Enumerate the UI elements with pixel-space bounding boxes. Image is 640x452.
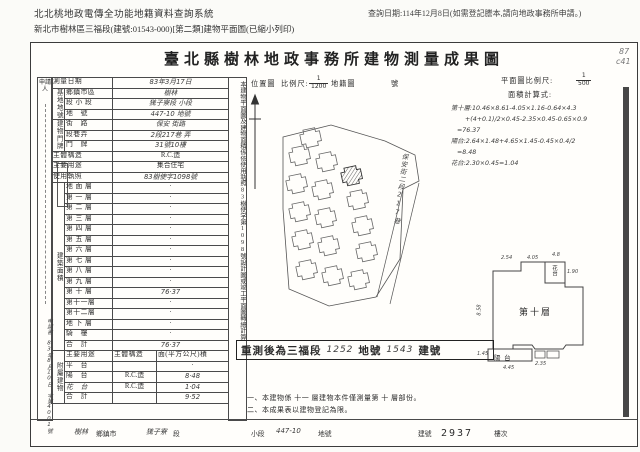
license-label: 使用執照: [52, 172, 113, 183]
calc-line: =8.48: [451, 147, 633, 158]
calc-line: 花台:2.30×0.45=1.04: [451, 158, 633, 169]
field-value: 獇子寮段 小段: [113, 99, 229, 110]
footer-building-number: 2937: [441, 428, 473, 439]
attach-struct-header: 主體構造: [113, 351, 157, 362]
floor-label: 第 二 層: [65, 204, 113, 215]
attach-label: 陽 台: [65, 372, 113, 383]
survey-date-label: 測量日期: [52, 78, 113, 89]
table-row: 第 一 層·: [52, 193, 229, 204]
dim-right-a: 1.90: [567, 269, 578, 275]
floor-plan-label: 第十層: [519, 305, 552, 318]
table-row: 門 牌 31號10樓: [52, 141, 229, 152]
attach-struct: R.C.造: [113, 382, 157, 393]
table-row: 合 計76·37: [52, 340, 229, 351]
table-row: 地 號 447-10 地號: [52, 109, 229, 120]
building-form-table: 測量日期 83年3月17日 基地地號 鄉鎮市區 樹林 段 小 段 獇子寮段 小段…: [51, 77, 229, 404]
pencil-mark-top: 87: [619, 47, 629, 56]
table-row: 使用執照 83樹使字1098號: [52, 172, 229, 183]
small-planter-a: [535, 351, 545, 358]
calc-line: +(4+0.1)/2×0.45-2.35×0.45-0.65×0.9: [451, 114, 633, 125]
remeasure-lot-number: 1252: [327, 345, 354, 355]
field-value: 31號10樓: [113, 141, 229, 152]
site-group-label: 基地地號: [52, 88, 65, 120]
attach-label: 平 台: [65, 361, 113, 372]
floor-total-value: 76·37: [113, 340, 229, 351]
table-row: 建物門牌 街 路 保安 街路: [52, 120, 229, 131]
floor-area: ·: [113, 319, 229, 330]
plan-scale-label: 平面圖比例尺:: [501, 76, 553, 86]
attach-label: 花 台: [65, 382, 113, 393]
footer-subsection-label: 小段: [251, 428, 265, 438]
table-row: 第 三 層·: [52, 214, 229, 225]
pencil-mark-bottom: c41: [616, 57, 631, 66]
footer-building-label: 建號: [418, 428, 432, 438]
scale-denominator: 500: [576, 80, 591, 88]
footer-section-label: 段: [173, 428, 180, 438]
scan-edge-shadow: [623, 87, 629, 417]
floor-label: 第 十 層: [65, 288, 113, 299]
applicant-blank-line: [45, 104, 46, 304]
table-row: 主體構造 R.C.造: [52, 151, 229, 162]
attach-struct: [113, 361, 157, 372]
floor-area: ·: [113, 309, 229, 320]
table-row: 騎 樓·: [52, 330, 229, 341]
field-value: 447-10 地號: [113, 109, 229, 120]
floor-label: 第 六 層: [65, 246, 113, 257]
remeasure-note-box: 重測後為三福段 1252 地號 1543 建號: [236, 340, 494, 360]
remeasure-building-suffix: 建號: [418, 343, 441, 358]
attachment-group-label: 附屬建物: [52, 351, 65, 404]
floor-area: ·: [113, 204, 229, 215]
field-label: 段巷弄: [65, 130, 113, 141]
structure-label: 主體構造: [52, 151, 113, 162]
table-row: 第 九 層·: [52, 277, 229, 288]
note-1: 一、本建物係 十一 層建物本件僅測量第 十 層部份。: [247, 393, 421, 403]
table-row: 第 八 層·: [52, 267, 229, 278]
query-date: 查詢日期:114年12月8日(如需登記謄本,請向地政事務所申請。): [368, 8, 581, 19]
door-group-label: 建物門牌: [52, 120, 65, 152]
calc-line: 第十層:10.46×8.61-4.05×1.16-0.64×4.3: [451, 103, 633, 114]
building-footprints: [285, 127, 378, 291]
floor-label: 第 一 層: [65, 193, 113, 204]
floor-area: ·: [113, 267, 229, 278]
table-row: 平 台 ·: [52, 361, 229, 372]
floor-label: 騎 樓: [65, 330, 113, 341]
area-calculation: 第十層:10.46×8.61-4.05×1.16-0.64×4.3 +(4+0.…: [451, 103, 633, 169]
floor-label: 第十二層: [65, 309, 113, 320]
table-row: 第 五 層·: [52, 235, 229, 246]
attach-area: 8·48: [157, 372, 229, 383]
calc-line: =76.37: [451, 125, 633, 136]
attach-use-header: 主要用途: [65, 351, 113, 362]
applicant-label: 申請人: [38, 80, 52, 93]
note-2: 二、本成果表以建物登記為限。: [247, 405, 352, 415]
footer-divider: [31, 419, 637, 420]
footer-town-value: 樹林: [74, 427, 88, 437]
remeasure-prefix: 重測後為三福段: [241, 343, 322, 358]
attach-area: 1·04: [157, 382, 229, 393]
floor-area: ·: [113, 225, 229, 236]
table-row: 合 計 9·52: [52, 393, 229, 404]
dim-top-c: 4.8: [552, 252, 560, 258]
use-label: 主要用途: [52, 162, 113, 173]
floor-label: 地 下 層: [65, 319, 113, 330]
field-value: 樹林: [113, 88, 229, 99]
floor-label: 第 九 層: [65, 277, 113, 288]
floor-area: ·: [113, 235, 229, 246]
table-row: 附屬建物 主要用途 主體構造 面(平方公尺)積: [52, 351, 229, 362]
floor-total-label: 合 計: [65, 340, 113, 351]
table-row: 第十二層·: [52, 309, 229, 320]
floor-label: 第 五 層: [65, 235, 113, 246]
location-map: [243, 89, 449, 315]
north-arrow-icon: [249, 95, 261, 189]
survey-date-value: 83年3月17日: [113, 78, 229, 89]
floor-area: ·: [113, 277, 229, 288]
floor-area: ·: [113, 256, 229, 267]
table-row: 第 七 層·: [52, 256, 229, 267]
table-row: 段 小 段 獇子寮段 小段: [52, 99, 229, 110]
table-row: 測量日期 83年3月17日: [52, 78, 229, 89]
calc-line: 陽台:2.64×1.48+4.65×1.45-0.45×0.4/2: [451, 136, 633, 147]
dim-top-a: 2.54: [501, 255, 512, 261]
field-label: 門 牌: [65, 141, 113, 152]
floor-area: ·: [113, 183, 229, 194]
floor-area: ·: [113, 193, 229, 204]
table-row: 建築面積 地 面 層 ·: [52, 183, 229, 194]
floor-label: 第 四 層: [65, 225, 113, 236]
table-row: 第 六 層·: [52, 246, 229, 257]
dim-bottom-a: 4.45: [503, 365, 514, 371]
field-label: 鄉鎮市區: [65, 88, 113, 99]
dim-left: 8.58: [477, 304, 483, 315]
table-row: 第 十 層76·37: [52, 288, 229, 299]
location-map-label: 位置圖: [251, 79, 276, 89]
floor-label: 地 面 層: [65, 183, 113, 194]
remeasure-building-number: 1543: [386, 345, 413, 355]
footer-lot-value: 447-10: [276, 427, 301, 435]
balcony-label: 陽 台: [494, 352, 512, 362]
attach-total-value: 9·52: [157, 393, 229, 404]
scanned-document: 臺北縣樹林地政事務所建物測量成果圖 87 c41 申請人 申請書 83年8月10…: [30, 42, 638, 447]
attach-area-header: 面(平方公尺)積: [157, 351, 229, 362]
application-number-note: 申請書 83年8月10日 字第4001號: [39, 318, 51, 448]
license-value: 83樹使字1098號: [113, 172, 229, 183]
floor-plan: [471, 249, 621, 391]
field-label: 地 號: [65, 109, 113, 120]
system-title: 北北桃地政電傳全功能地籍資料查詢系統: [34, 6, 214, 20]
table-row: 段巷弄 2段217巷 弄: [52, 130, 229, 141]
table-row: 基地地號 鄉鎮市區 樹林: [52, 88, 229, 99]
scale-numerator: 1: [582, 73, 586, 80]
field-value: 2段217巷 弄: [113, 130, 229, 141]
attach-area: ·: [157, 361, 229, 372]
structure-value: R.C.造: [113, 151, 229, 162]
dim-bottom-b: 2.35: [535, 361, 546, 367]
document-title: 臺北縣樹林地政事務所建物測量成果圖: [31, 48, 637, 69]
floor-area: ·: [113, 298, 229, 309]
scale-numerator: 1: [317, 76, 321, 83]
area-calc-label: 面積計算式:: [508, 90, 552, 100]
footer-floor-label: 樓次: [494, 428, 508, 438]
table-row: 第 二 層·: [52, 204, 229, 215]
floor-area: ·: [113, 214, 229, 225]
footer-town-label: 鄉鎮市: [96, 428, 116, 438]
floor-label: 第 三 層: [65, 214, 113, 225]
table-row: 陽 台 R.C.造 8·48: [52, 372, 229, 383]
cadastral-map-number-suffix: 號: [391, 79, 399, 89]
floor-label: 第 七 層: [65, 256, 113, 267]
floor-area: ·: [113, 330, 229, 341]
field-label: 街 路: [65, 120, 113, 131]
floor-area: ·: [113, 246, 229, 257]
floor-area-tenth: 76·37: [113, 288, 229, 299]
remeasure-lot-suffix: 地號: [358, 343, 381, 358]
attach-total-label: 合 計: [65, 393, 113, 404]
floor-label: 第 八 層: [65, 267, 113, 278]
table-row: 花 台 R.C.造 1·04: [52, 382, 229, 393]
subject-building-hatched: [340, 165, 363, 187]
footer-section-value: 獇子寮: [146, 427, 167, 437]
field-label: 段 小 段: [65, 99, 113, 110]
cadastral-map-label: 地籍圖: [331, 79, 356, 89]
location-scale-label: 比例尺:: [281, 79, 309, 89]
table-row: 第 四 層·: [52, 225, 229, 236]
floor-label: 第十一層: [65, 298, 113, 309]
document-subtitle: 新北市樹林區三福段(建號:01543-000)[第二類]建物平面圖(已縮小列印): [34, 23, 294, 35]
plan-scale-fraction: 1 500: [576, 73, 591, 87]
field-value: 保安 街路: [113, 120, 229, 131]
attach-struct: [113, 393, 157, 404]
table-row: 主要用途 集合住宅: [52, 162, 229, 173]
table-row: 第十一層·: [52, 298, 229, 309]
attach-struct: R.C.造: [113, 372, 157, 383]
dim-top-b: 4.05: [527, 255, 538, 261]
small-planter-b: [547, 351, 559, 358]
planter-label: 花台: [550, 265, 558, 276]
footer-lot-label: 地號: [318, 428, 332, 438]
use-value: 集合住宅: [113, 162, 229, 173]
area-group-label: 建築面積: [52, 183, 65, 351]
table-row: 地 下 層·: [52, 319, 229, 330]
